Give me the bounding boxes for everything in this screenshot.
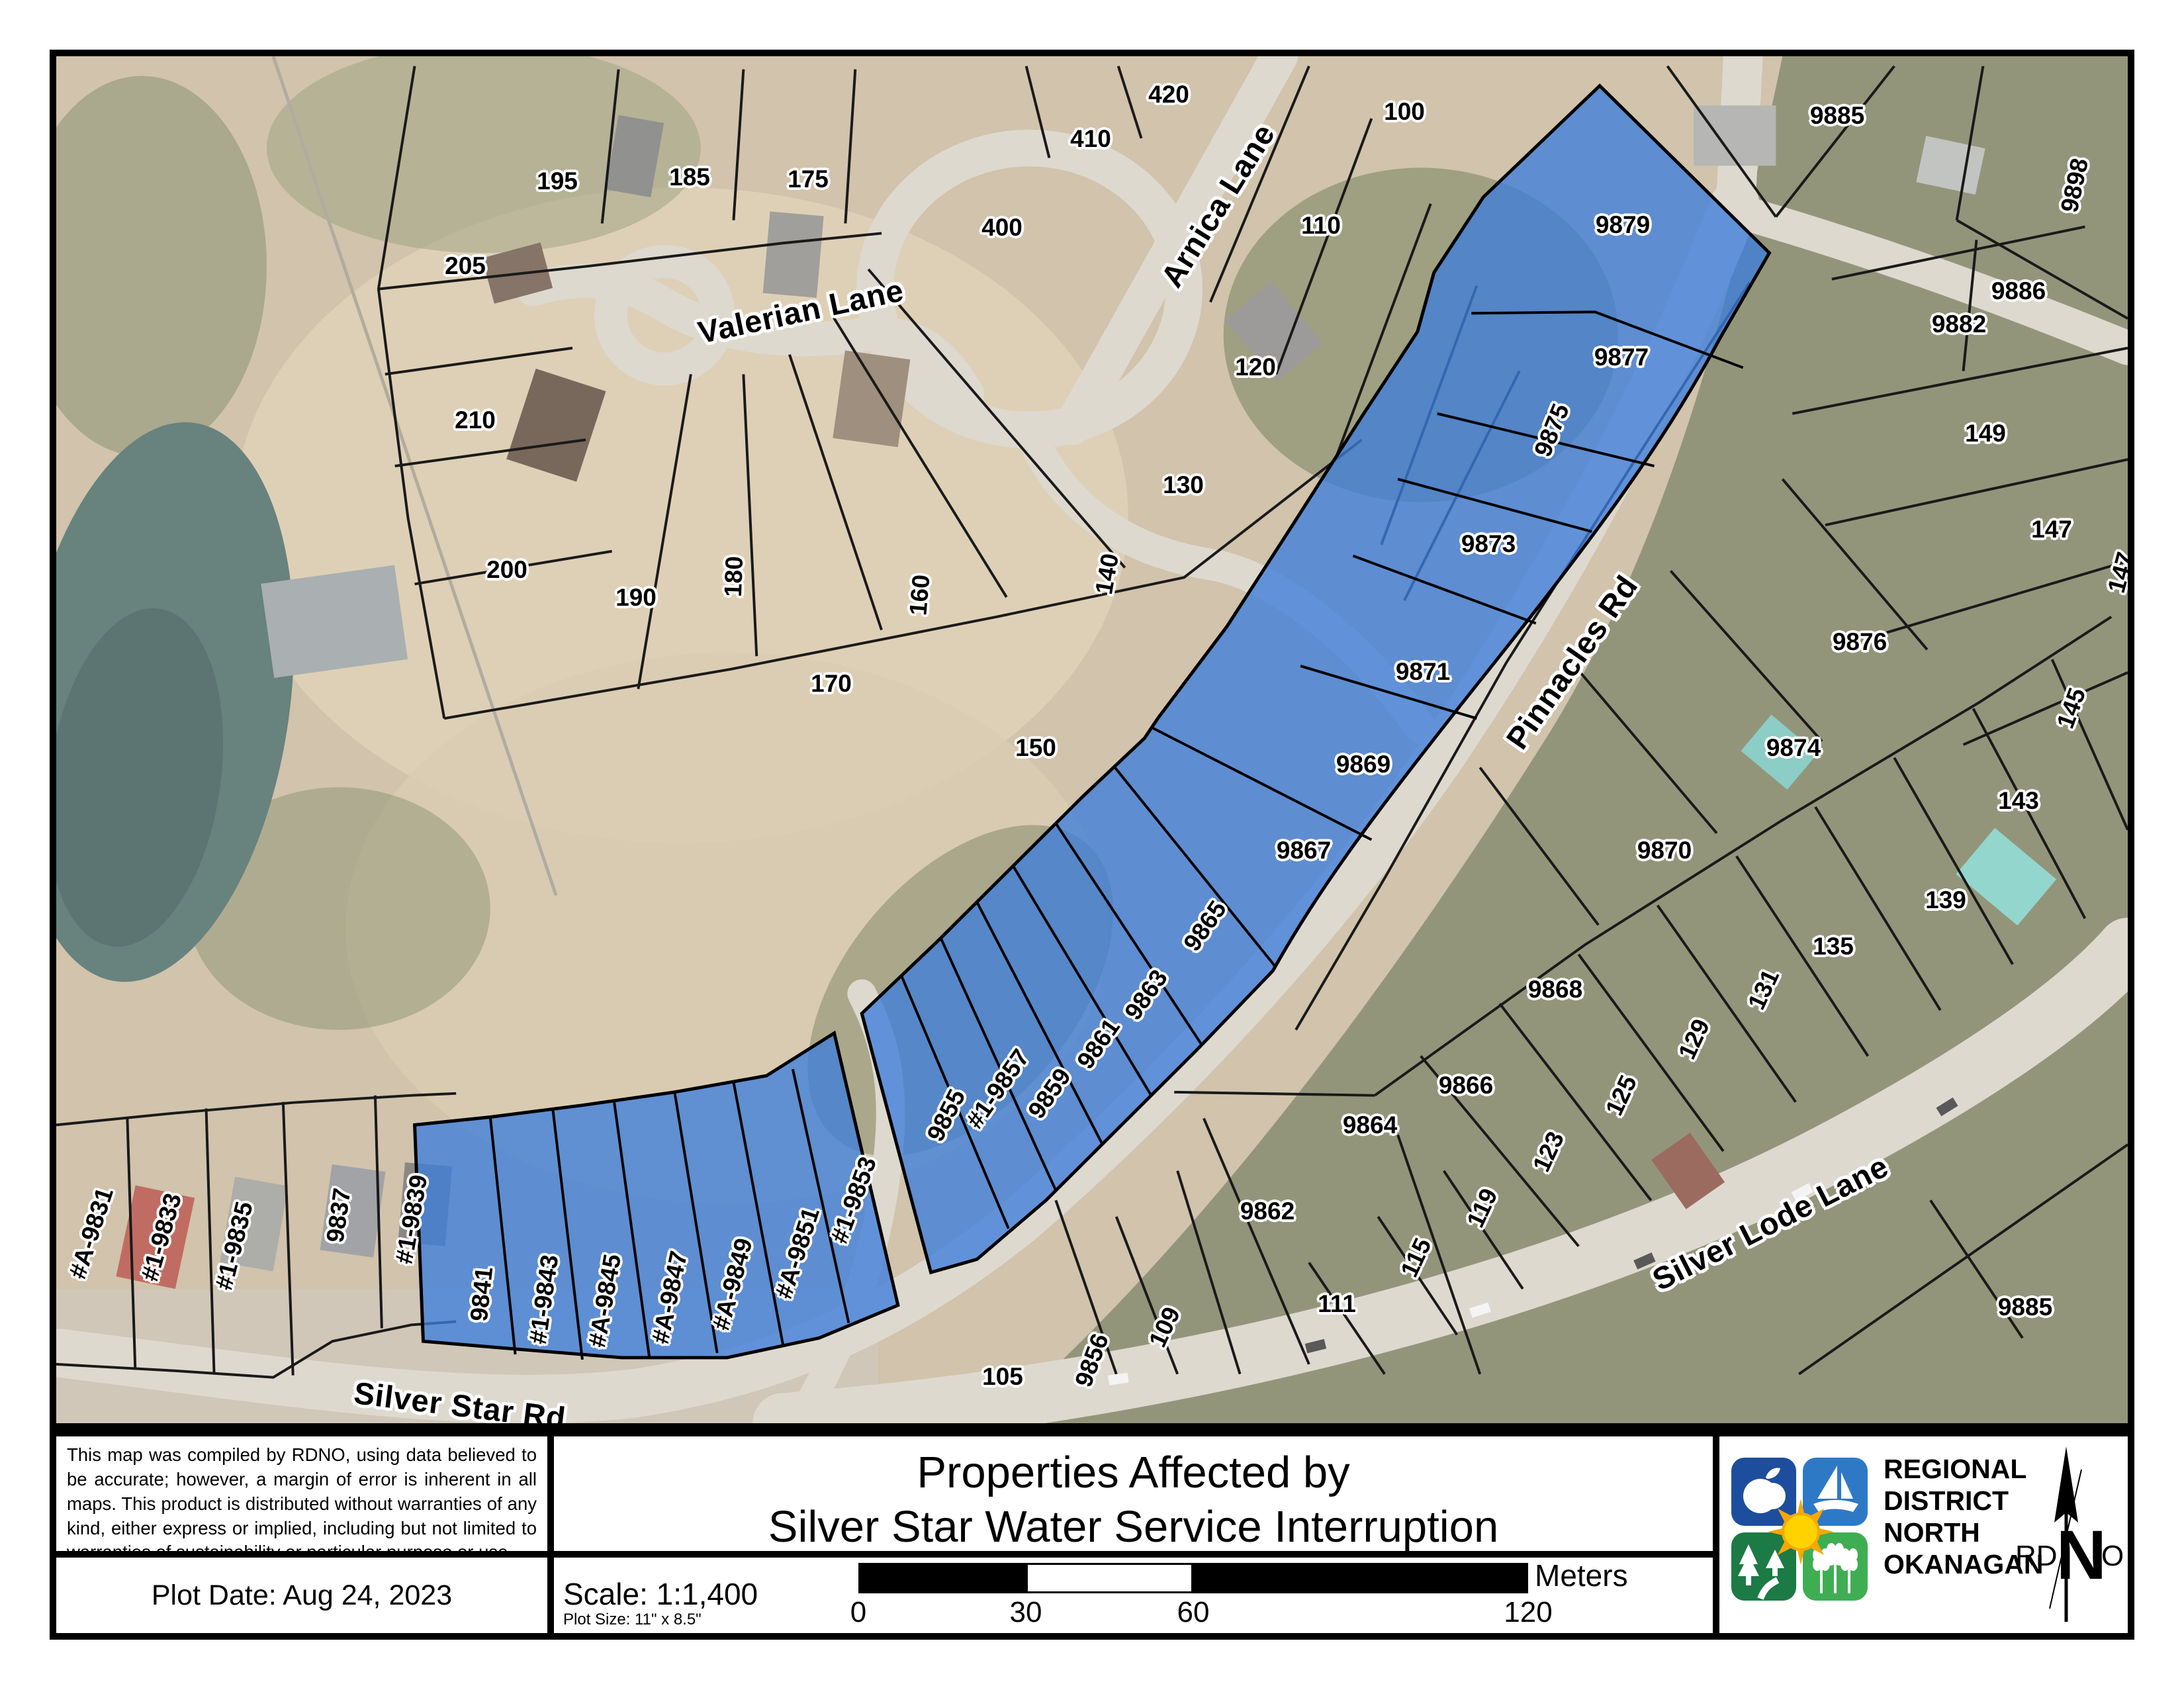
road-label: Silver Star Rd bbox=[352, 1374, 569, 1430]
parcel-label: 100 bbox=[1384, 98, 1425, 126]
road-label: Arnica Lane bbox=[1153, 117, 1282, 294]
parcel-label: 9898 bbox=[2056, 156, 2094, 214]
parcel-label: 120 bbox=[1235, 353, 1276, 381]
parcel-label: 123 bbox=[1527, 1127, 1570, 1176]
scale-tick-0: 0 bbox=[850, 1596, 866, 1629]
affected-parcel-label: 9877 bbox=[1594, 344, 1649, 371]
affected-parcel-label: 9867 bbox=[1277, 837, 1331, 865]
scale-bar-white-segment bbox=[1026, 1563, 1193, 1593]
sun-icon bbox=[1768, 1499, 1834, 1565]
parcel-label: 205 bbox=[445, 252, 486, 280]
parcel-label: #1-9835 bbox=[210, 1199, 259, 1293]
parcel-label: 170 bbox=[811, 670, 852, 698]
map-title-line2: Silver Star Water Service Interruption bbox=[554, 1500, 1713, 1554]
rdno-logo bbox=[1731, 1458, 1870, 1603]
parcel-label: 149 bbox=[1965, 420, 2006, 447]
parcel-label: 9885 bbox=[1810, 102, 1864, 130]
parcel-label: 9837 bbox=[321, 1186, 356, 1244]
parcel-label: 9874 bbox=[1766, 734, 1821, 762]
affected-parcel-label: 9871 bbox=[1396, 658, 1450, 686]
affected-parcel-label: #1-9853 bbox=[825, 1153, 882, 1247]
affected-parcel-label: 9875 bbox=[1529, 400, 1575, 461]
north-arrow-icon: RD N O bbox=[2010, 1443, 2122, 1635]
scale-tick-120: 120 bbox=[1504, 1596, 1552, 1629]
parcel-label: 119 bbox=[1461, 1184, 1503, 1232]
parcel-label: 160 bbox=[904, 573, 935, 616]
affected-parcel-label: #A-9845 bbox=[583, 1252, 627, 1349]
parcel-label: 143 bbox=[1998, 787, 2039, 815]
parcel-label: 129 bbox=[1673, 1015, 1715, 1064]
map-sheet: 1951851752052102001901801701601501401301… bbox=[0, 0, 2184, 1688]
parcel-label: 147 bbox=[2031, 516, 2072, 543]
affected-parcel-label: 9859 bbox=[1023, 1063, 1077, 1124]
affected-parcel-label: 9861 bbox=[1071, 1013, 1126, 1074]
parcel-label: 110 bbox=[1301, 212, 1341, 240]
parcel-label: 210 bbox=[455, 406, 496, 434]
affected-parcel-label: 9841 bbox=[465, 1266, 498, 1323]
parcel-label: 420 bbox=[1148, 81, 1189, 109]
affected-parcel-label: 9865 bbox=[1178, 896, 1232, 957]
parcel-label: 200 bbox=[486, 556, 527, 584]
parcel-label: 131 bbox=[1743, 965, 1785, 1014]
parcel-label: 135 bbox=[1813, 933, 1854, 961]
affected-parcel-label: #1-9857 bbox=[961, 1044, 1035, 1133]
affected-parcel-label: 9869 bbox=[1336, 751, 1390, 778]
road-label: Silver Lode Lane bbox=[1647, 1147, 1894, 1297]
parcel-label: 9856 bbox=[1069, 1330, 1115, 1391]
parcel-label: 139 bbox=[1925, 886, 1966, 914]
affected-parcel-label: #A-9847 bbox=[647, 1248, 694, 1346]
road-label: Pinnacles Rd bbox=[1498, 568, 1645, 755]
parcel-label: 9868 bbox=[1528, 976, 1582, 1004]
affected-parcel-label: 9863 bbox=[1119, 964, 1173, 1025]
scale-tick-60: 60 bbox=[1177, 1596, 1210, 1629]
affected-parcel-label: #1-9843 bbox=[524, 1253, 564, 1346]
north-arrow-n: N bbox=[2056, 1517, 2107, 1594]
parcel-label: 125 bbox=[1600, 1071, 1643, 1120]
parcel-label: 9866 bbox=[1439, 1072, 1493, 1100]
parcel-label: 105 bbox=[982, 1363, 1023, 1391]
logo-box: REGIONAL DISTRICT NORTH OKANAGAN RD N O bbox=[1713, 1430, 2134, 1640]
disclaimer-box: This map was compiled by RDNO, using dat… bbox=[50, 1430, 554, 1558]
scale-bar bbox=[858, 1563, 1528, 1593]
map-area: 1951851752052102001901801701601501401301… bbox=[50, 50, 2134, 1430]
disclaimer-text: This map was compiled by RDNO, using dat… bbox=[56, 1436, 547, 1565]
parcel-label: 400 bbox=[981, 214, 1023, 242]
parcel-label: 180 bbox=[719, 555, 749, 597]
parcel-label: 9864 bbox=[1343, 1111, 1397, 1139]
parcel-label: #1-9839 bbox=[390, 1172, 433, 1266]
parcel-label: 9882 bbox=[1932, 310, 1986, 338]
parcel-label: 9870 bbox=[1637, 837, 1692, 865]
parcel-label: 9886 bbox=[1991, 277, 2046, 305]
north-arrow-rd: RD bbox=[2015, 1540, 2058, 1572]
scale-unit-label: Meters bbox=[1535, 1558, 1628, 1593]
parcel-label: #1-9833 bbox=[136, 1190, 187, 1284]
affected-parcel-label: #A-9851 bbox=[770, 1204, 825, 1302]
scale-text: Scale: 1:1,400 bbox=[563, 1576, 758, 1612]
parcel-label: 195 bbox=[537, 167, 578, 195]
map-labels: 1951851752052102001901801701601501401301… bbox=[56, 56, 2128, 1423]
parcel-label: 150 bbox=[1015, 734, 1056, 762]
parcel-label: #A-9831 bbox=[64, 1184, 119, 1282]
parcel-label: 111 bbox=[1318, 1290, 1356, 1318]
affected-parcel-label: 9879 bbox=[1596, 211, 1650, 239]
north-arrow-o: O bbox=[2101, 1540, 2122, 1572]
plot-date: Plot Date: Aug 24, 2023 bbox=[56, 1558, 547, 1633]
parcel-label: 410 bbox=[1070, 125, 1111, 153]
parcel-label: 147 bbox=[2103, 549, 2134, 596]
parcel-label: 185 bbox=[669, 164, 710, 191]
title-box: Properties Affected by Silver Star Water… bbox=[547, 1430, 1719, 1558]
scale-tick-30: 30 bbox=[1010, 1596, 1042, 1629]
parcel-label: 145 bbox=[2052, 684, 2092, 732]
parcel-label: 115 bbox=[1395, 1234, 1437, 1282]
affected-parcel-label: 9873 bbox=[1461, 530, 1516, 558]
road-label: Valerian Lane bbox=[695, 271, 907, 351]
parcel-label: 190 bbox=[615, 584, 657, 612]
map-title-line1: Properties Affected by bbox=[554, 1446, 1713, 1500]
scale-box: Scale: 1:1,400 Plot Size: 11" x 8.5" 0 3… bbox=[547, 1551, 1719, 1640]
plot-size-text: Plot Size: 11" x 8.5" bbox=[563, 1611, 702, 1629]
parcel-label: 109 bbox=[1144, 1303, 1186, 1352]
parcel-label: 175 bbox=[788, 165, 829, 193]
parcel-label: 9885 bbox=[1998, 1293, 2052, 1321]
plot-date-box: Plot Date: Aug 24, 2023 bbox=[50, 1551, 554, 1640]
parcel-label: 9862 bbox=[1240, 1197, 1295, 1225]
parcel-label: 130 bbox=[1163, 471, 1204, 499]
affected-parcel-label: #A-9849 bbox=[707, 1235, 758, 1333]
parcel-label: 9876 bbox=[1833, 628, 1887, 656]
parcel-label: 140 bbox=[1090, 551, 1124, 596]
